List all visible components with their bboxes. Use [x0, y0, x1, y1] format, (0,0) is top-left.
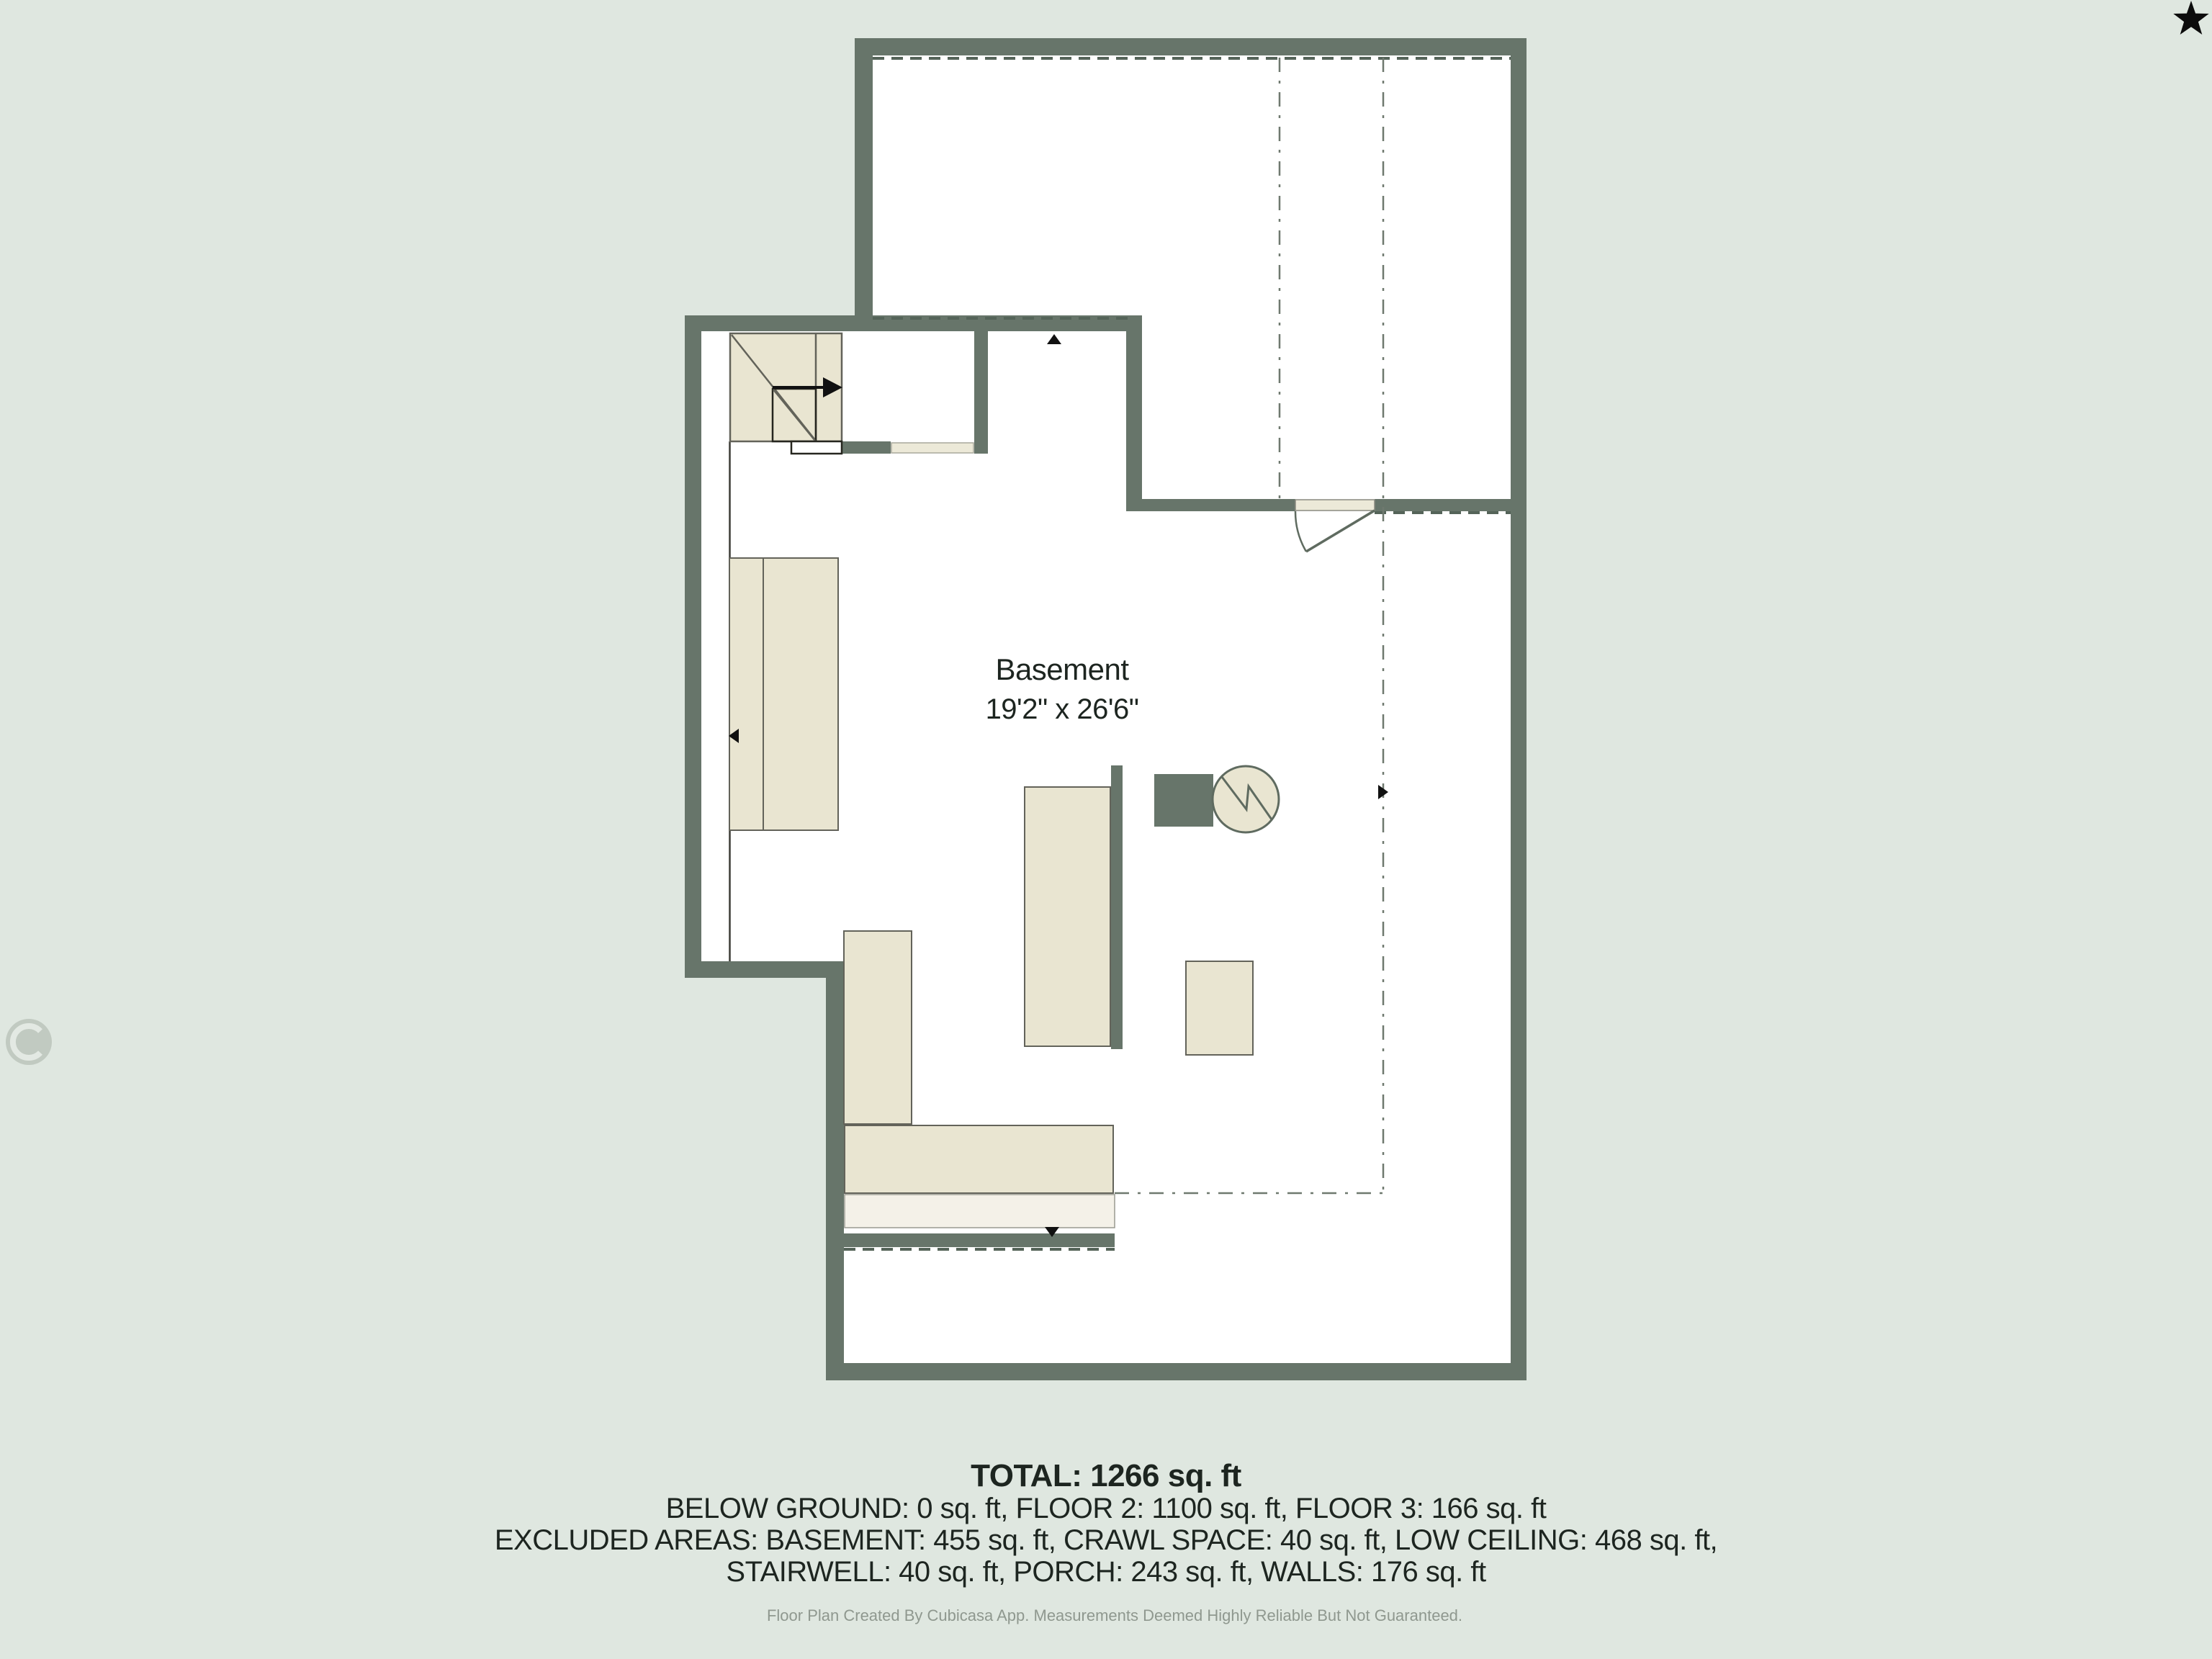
floor-plan-page: Basement 19'2" x 26'6" TOTAL: 1266 sq. f…: [0, 0, 2212, 1659]
furnace-water-heater-icon: [1213, 766, 1279, 832]
floor-plan-canvas: Basement 19'2" x 26'6" TOTAL: 1266 sq. f…: [0, 0, 2212, 1659]
wall-right-exterior: [1511, 38, 1527, 1380]
wall-lower-left-exterior: [826, 961, 844, 1380]
closet-left: [729, 558, 838, 830]
summary-excluded-1: EXCLUDED AREAS: BASEMENT: 455 sq. ft, CR…: [495, 1524, 1717, 1556]
wall-door-right: [1375, 499, 1511, 511]
wall-stair-hall-divider: [974, 315, 988, 454]
footer-disclaimer: Floor Plan Created By Cubicasa App. Meas…: [767, 1606, 1462, 1624]
door-sill: [1295, 500, 1375, 511]
wall-upper-left-exterior: [855, 38, 873, 331]
summary-excluded-2: STAIRWELL: 40 sq. ft, PORCH: 243 sq. ft,…: [726, 1556, 1486, 1588]
wall-bottom-exterior: [826, 1363, 1527, 1380]
room-dimensions: 19'2" x 26'6": [986, 693, 1139, 725]
small-cabinet: [1186, 961, 1253, 1055]
wall-bottom-stub: [843, 1233, 1115, 1247]
wall-mid-bottom: [685, 961, 844, 978]
wall-door-left: [1142, 499, 1295, 511]
wall-mid-left-exterior: [685, 315, 701, 978]
wall-top-exterior: [855, 38, 1527, 55]
stair-landing: [791, 441, 842, 454]
summary-total: TOTAL: 1266 sq. ft: [971, 1458, 1242, 1493]
counter-center: [1025, 787, 1110, 1046]
furnace-pad: [1154, 774, 1213, 827]
wall-hall-right: [1126, 315, 1142, 511]
half-wall: [1111, 765, 1123, 1049]
lower-shelf-strip: [845, 1195, 1115, 1228]
opening-sill: [891, 443, 974, 453]
room-label: Basement: [995, 652, 1129, 686]
summary-floors: BELOW GROUND: 0 sq. ft, FLOOR 2: 1100 sq…: [666, 1493, 1547, 1524]
cubicasa-logo-watermark: [6, 1019, 52, 1065]
workbench-lower: [845, 1125, 1113, 1193]
wall-stair-stub: [842, 441, 891, 454]
tall-cabinet-lower-left: [844, 931, 912, 1124]
